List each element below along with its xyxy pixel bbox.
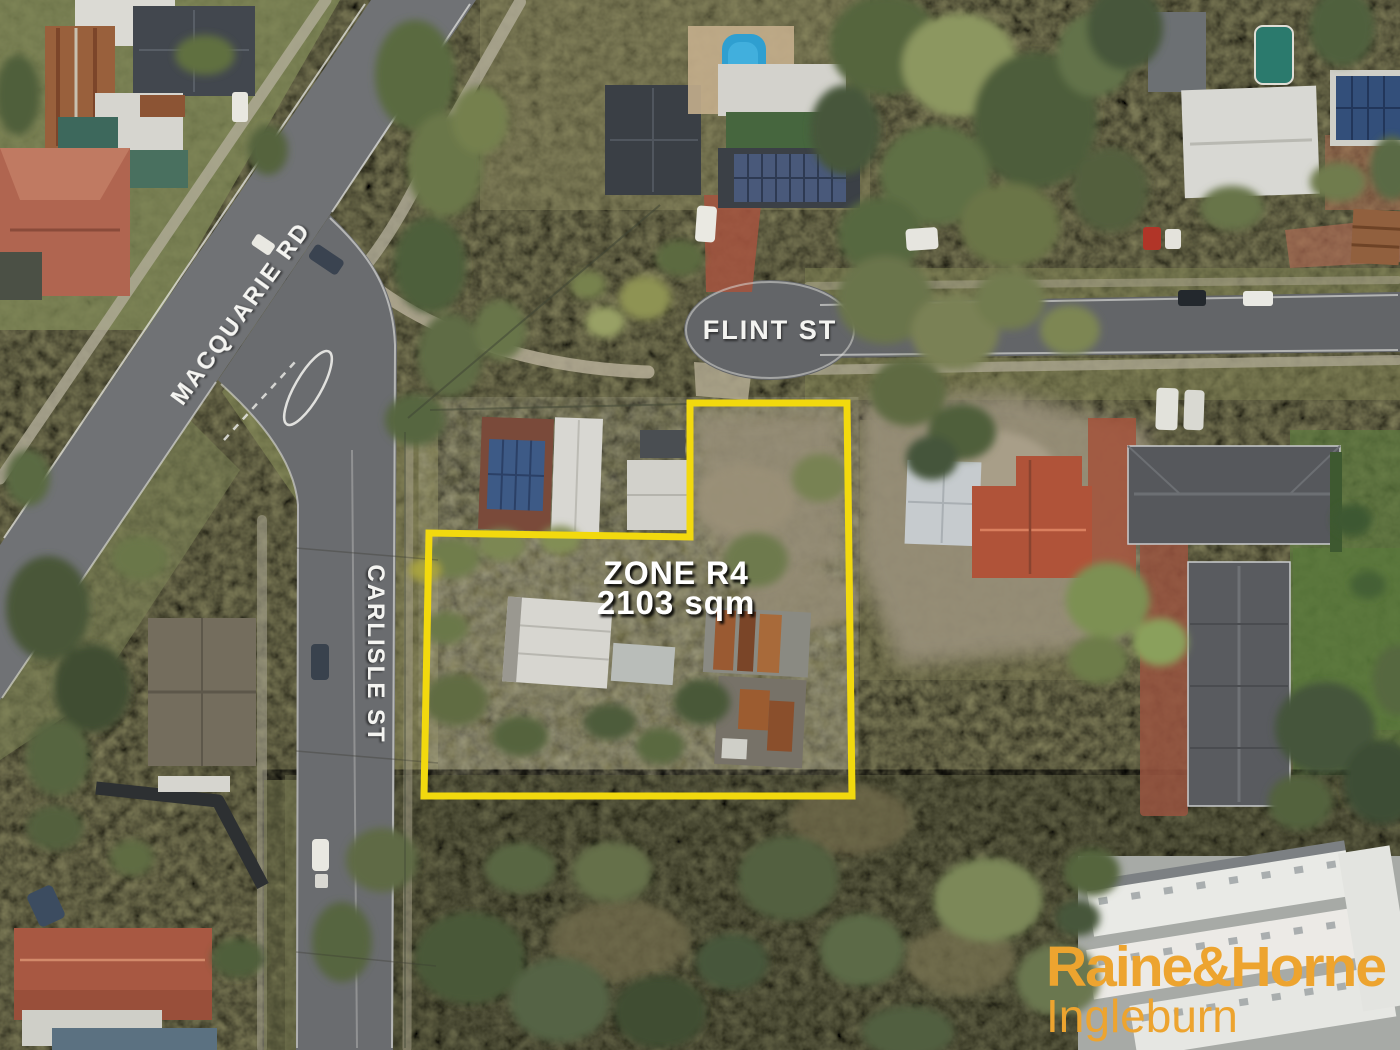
- car: [311, 644, 329, 680]
- car: [695, 205, 717, 242]
- shed-roof: [0, 252, 42, 300]
- zone-annotation: ZONE R4 2103 sqm: [597, 555, 755, 621]
- shed-roof: [611, 643, 675, 685]
- car: [1143, 227, 1161, 250]
- car: [232, 92, 248, 122]
- street-label-flint-st: FLINT ST: [703, 315, 837, 345]
- car: [905, 227, 938, 251]
- house-roof: [148, 618, 256, 766]
- townhouse-roof: [1188, 562, 1290, 806]
- van: [1183, 390, 1204, 431]
- house-roof: [551, 417, 603, 534]
- aerial-photo: MACQUARIE RD FLINT ST CARLISLE ST ZONE R…: [0, 0, 1400, 1050]
- house-roof: [1181, 86, 1320, 199]
- shed-roof: [158, 776, 230, 792]
- solar-array: [1330, 70, 1400, 146]
- house-roof: [605, 85, 701, 195]
- area-label: 2103 sqm: [597, 584, 755, 621]
- hedge: [1330, 452, 1342, 552]
- aerial-photo-canvas: MACQUARIE RD FLINT ST CARLISLE ST ZONE R…: [0, 0, 1400, 1050]
- house-roof: [14, 928, 217, 1050]
- townhouse-roof: [1128, 446, 1340, 544]
- car: [1243, 291, 1273, 306]
- car: [1165, 229, 1181, 249]
- car: [1178, 290, 1206, 306]
- shed-roof: [1351, 209, 1400, 265]
- pool-cover: [1255, 26, 1293, 84]
- brand-logo-office: Ingleburn: [1046, 990, 1238, 1042]
- street-label-carlisle-st: CARLISLE ST: [362, 564, 389, 743]
- van: [1155, 388, 1178, 431]
- house-roof-solar: [478, 417, 554, 531]
